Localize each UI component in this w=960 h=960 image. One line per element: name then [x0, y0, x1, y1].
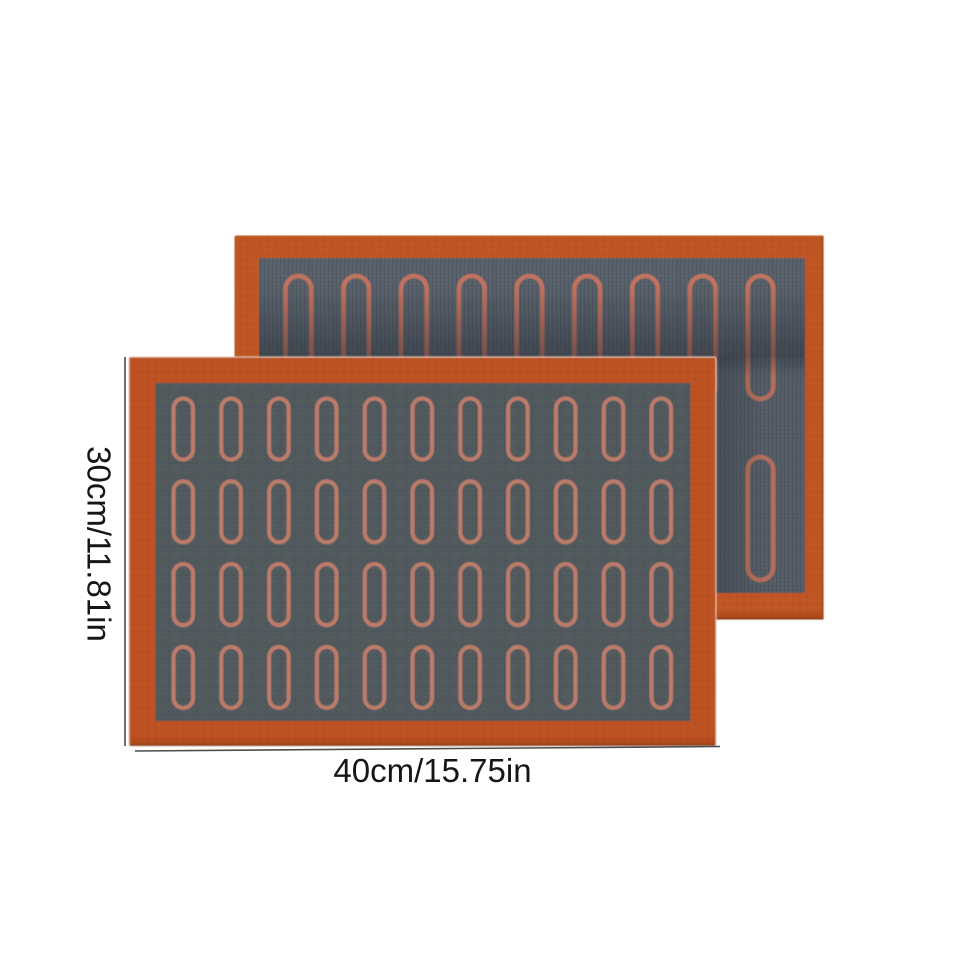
svg-text:40cm/15.75in: 40cm/15.75in — [333, 752, 531, 789]
svg-text:30cm/11.81in: 30cm/11.81in — [81, 446, 118, 642]
